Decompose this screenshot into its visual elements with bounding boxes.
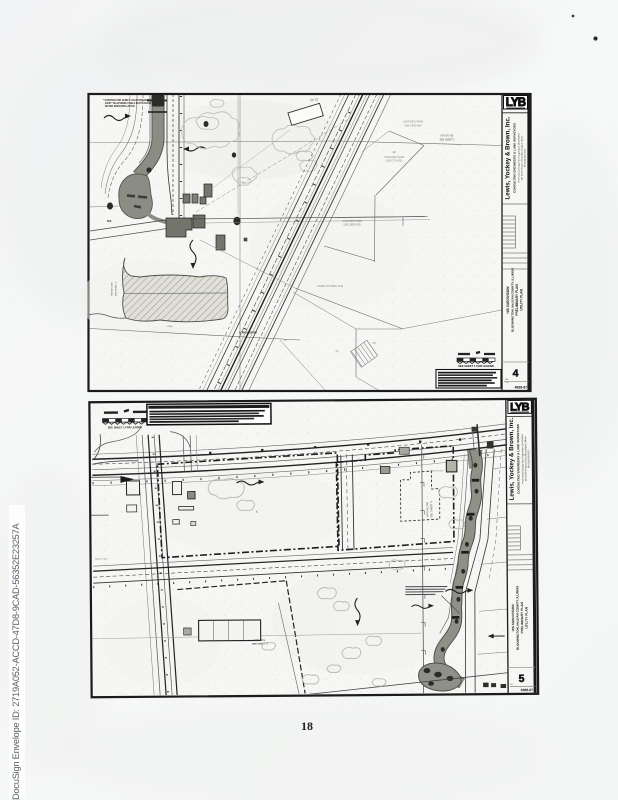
svg-text:SEE SHEET 1 FOR LEGEND: SEE SHEET 1 FOR LEGEND <box>108 425 143 429</box>
svg-text:4888-87: 4888-87 <box>515 385 528 389</box>
svg-text:LONGVIEW RD: LONGVIEW RD <box>239 332 257 335</box>
svg-text:land: land <box>309 97 318 103</box>
svg-text:SEE SHEET 2: SEE SHEET 2 <box>440 140 455 142</box>
svg-text:MATCH LINE: MATCH LINE <box>425 502 429 518</box>
svg-text:SUB 11TH ADD: SUB 11TH ADD <box>386 160 403 163</box>
svg-text:305 North Prospect Road Blo: 305 North Prospect Road Bloomington, Ill… <box>524 436 527 482</box>
svg-text:KAY DR. RD: KAY DR. RD <box>441 135 454 138</box>
svg-text:Lewis, Yockey & Brown, Inc.: Lewis, Yockey & Brown, Inc. <box>508 417 516 500</box>
svg-text:UTILITY PLAN: UTILITY PLAN <box>524 606 528 628</box>
svg-text:LONGVIEW FARM: LONGVIEW FARM <box>403 121 423 124</box>
svg-text:BISS: BISS <box>168 326 174 328</box>
svg-text:Ph (309) 828-6023: Ph (309) 828-6023 <box>525 148 527 167</box>
svg-text:CONSULTING ENGINEERS & LAND SU: CONSULTING ENGINEERS & LAND SURVEYORS <box>513 123 517 193</box>
svg-text:PRELIMINARY PLAN: PRELIMINARY PLAN <box>520 601 524 633</box>
svg-text:MX: MX <box>107 219 112 223</box>
svg-text:BLOOMINGTON, McLEAN COUNTY, IL: BLOOMINGTON, McLEAN COUNTY, ILLINOIS <box>511 268 515 332</box>
svg-text:SEE SHEET 3: SEE SHEET 3 <box>429 501 433 518</box>
svg-text:4: 4 <box>513 368 519 380</box>
svg-text:SUB 23RD ADD: SUB 23RD ADD <box>404 125 422 128</box>
svg-text:EXIST TELEPHONE CABLE DUCT, AD: EXIST TELEPHONE CABLE DUCT, ADJUST <box>105 102 153 105</box>
svg-text:Professional Design Firm Regis: Professional Design Firm Registration 18… <box>518 133 521 183</box>
svg-text:5: 5 <box>519 673 525 685</box>
svg-text:PART OF LOT: PART OF LOT <box>430 469 444 472</box>
svg-text:* CONTRACTOR VERIFY LOCATION D: * CONTRACTOR VERIFY LOCATION DEPTH <box>103 99 152 102</box>
svg-text:305 North Prospect Road Blo: 305 North Prospect Road Bloomington, Ill… <box>521 135 524 181</box>
svg-text:LYB: LYB <box>506 97 526 109</box>
svg-text:SEE SHEET 3: SEE SHEET 3 <box>116 281 118 296</box>
svg-text:Professional Design Firm Regis: Professional Design Firm Registration 18… <box>521 434 524 484</box>
svg-text:42: 42 <box>392 150 396 154</box>
svg-text:Lewis, Yockey & Brown, Inc.: Lewis, Yockey & Brown, Inc. <box>505 116 512 199</box>
svg-text:MATCH LINE: MATCH LINE <box>111 282 114 296</box>
svg-text:MATCH LINE: MATCH LINE <box>95 558 108 561</box>
svg-text:Ph (309) 828-6023: Ph (309) 828-6023 <box>528 449 530 468</box>
svg-text:WATER MAIN INSULATION: WATER MAIN INSULATION <box>105 105 135 108</box>
svg-text:SUB 23RD ADD: SUB 23RD ADD <box>343 224 361 227</box>
svg-text:4888-87: 4888-87 <box>521 688 534 692</box>
svg-text:CAMELOT PARK SUB: CAMELOT PARK SUB <box>317 284 343 288</box>
svg-text:SEE SHEET 1 FOR LEGEND: SEE SHEET 1 FOR LEGEND <box>458 364 494 368</box>
svg-text:UTILITY PLAN: UTILITY PLAN <box>520 289 524 311</box>
svg-text:PRELIMINARY PLAN: PRELIMINARY PLAN <box>515 284 519 316</box>
svg-text:HIS SUBDIVISION: HIS SUBDIVISION <box>506 286 510 314</box>
svg-text:CONSULTING ENGINEERS & LAND SU: CONSULTING ENGINEERS & LAND SURVEYORS <box>516 424 521 494</box>
